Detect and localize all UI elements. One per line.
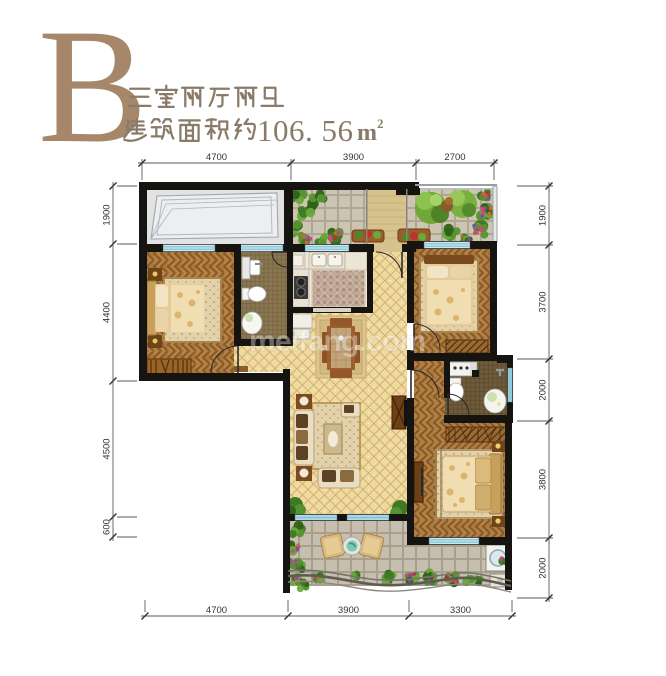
svg-text:1900: 1900 [538,205,549,226]
svg-text:2000: 2000 [538,557,549,578]
svg-text:600: 600 [102,519,113,535]
svg-text:4500: 4500 [102,438,113,459]
svg-text:4700: 4700 [206,152,227,163]
svg-text:106. 56: 106. 56 [257,113,354,148]
svg-text:4400: 4400 [102,302,113,323]
svg-text:3900: 3900 [338,605,359,616]
svg-text:3800: 3800 [538,469,549,490]
svg-text:2700: 2700 [444,152,465,163]
svg-text:3300: 3300 [450,605,471,616]
svg-text:3700: 3700 [538,291,549,312]
svg-text:2000: 2000 [538,379,549,400]
svg-text:4700: 4700 [206,605,227,616]
svg-text:2: 2 [377,116,384,131]
svg-text:m: m [357,120,377,146]
svg-text:meifang.com: meifang.com [249,325,425,358]
svg-text:3900: 3900 [343,152,364,163]
svg-text:1900: 1900 [102,204,113,225]
